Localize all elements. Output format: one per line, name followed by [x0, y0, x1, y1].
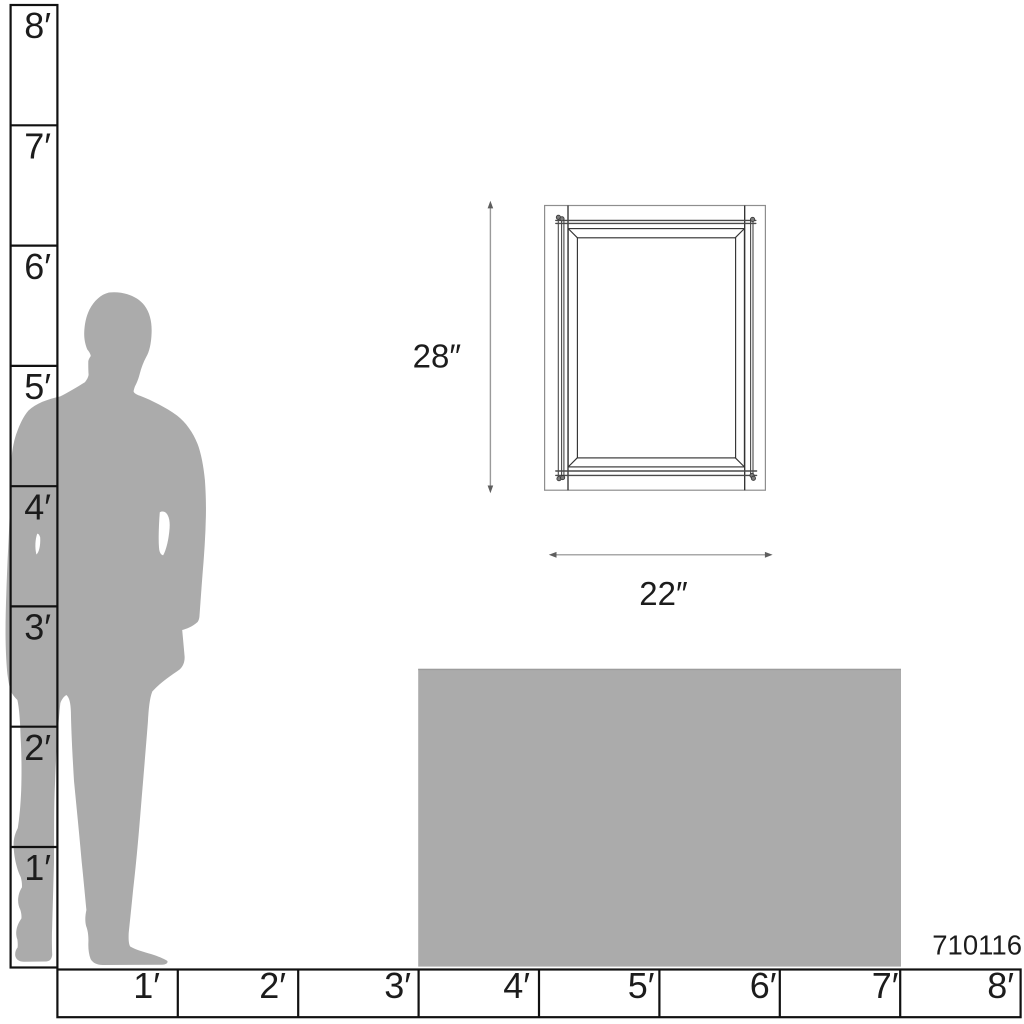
svg-text:4′: 4′ [24, 486, 51, 527]
svg-text:3′: 3′ [384, 965, 411, 1006]
svg-text:1′: 1′ [133, 965, 160, 1006]
svg-text:710116: 710116 [932, 930, 1022, 961]
svg-text:8′: 8′ [24, 5, 51, 46]
svg-text:6′: 6′ [750, 965, 777, 1006]
svg-text:7′: 7′ [24, 126, 51, 167]
svg-text:22″: 22″ [639, 575, 688, 612]
svg-text:2′: 2′ [24, 727, 51, 768]
svg-text:4′: 4′ [503, 965, 530, 1006]
svg-text:3′: 3′ [24, 607, 51, 648]
svg-text:5′: 5′ [24, 366, 51, 407]
svg-text:7′: 7′ [872, 965, 899, 1006]
svg-text:5′: 5′ [628, 965, 655, 1006]
svg-text:8′: 8′ [987, 965, 1014, 1006]
svg-text:28″: 28″ [413, 338, 462, 375]
svg-text:1′: 1′ [24, 847, 51, 888]
svg-text:6′: 6′ [24, 246, 51, 287]
svg-text:2′: 2′ [259, 965, 286, 1006]
